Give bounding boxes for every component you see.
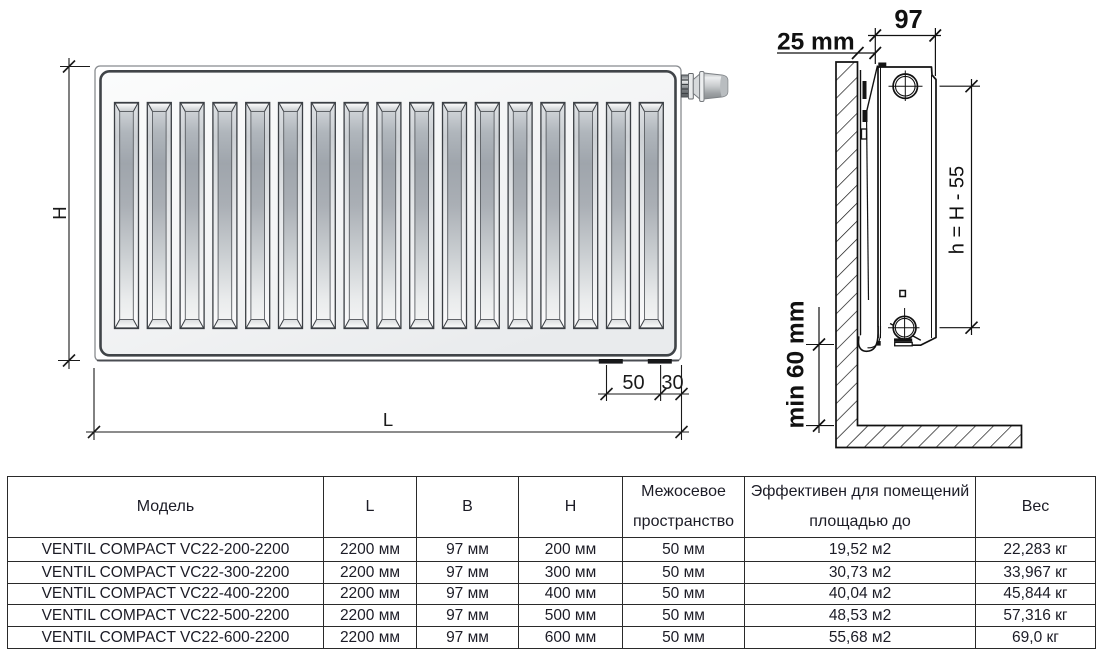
svg-text:50: 50 <box>622 372 644 394</box>
svg-text:min 60 mm: min 60 mm <box>783 301 810 429</box>
svg-text:H: H <box>49 206 70 219</box>
svg-text:L: L <box>383 409 393 430</box>
svg-text:97: 97 <box>894 6 922 34</box>
svg-text:30: 30 <box>661 372 683 394</box>
svg-text:25 mm: 25 mm <box>777 29 855 56</box>
svg-text:h = H - 55: h = H - 55 <box>947 166 969 254</box>
